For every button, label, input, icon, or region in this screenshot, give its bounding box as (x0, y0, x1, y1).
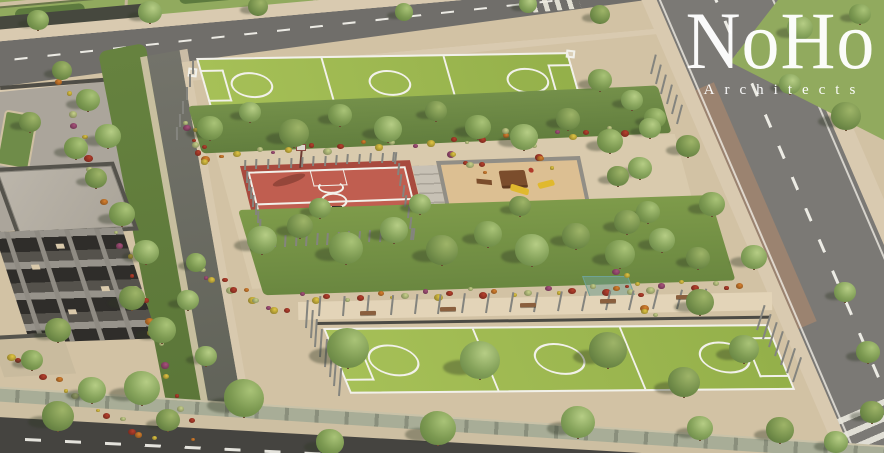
tree (649, 228, 675, 253)
tree-shadow (850, 412, 870, 421)
tree (686, 289, 714, 316)
tree-trunk (631, 107, 633, 111)
tree (316, 429, 344, 453)
tree (834, 282, 856, 303)
logo: NoHo Architects (678, 2, 883, 99)
tree-canopy (644, 108, 666, 129)
tree-shadow (304, 442, 328, 453)
tree-canopy (287, 214, 313, 239)
tree (561, 406, 595, 438)
tree-shadow (730, 257, 752, 267)
tree-trunk (91, 399, 93, 404)
tree-canopy (380, 217, 408, 244)
tree-trunk (699, 311, 701, 316)
tree-canopy (474, 221, 502, 248)
tree-shadow (666, 146, 686, 155)
tree-shadow (362, 129, 386, 140)
tree (78, 377, 106, 404)
tree-trunk (299, 234, 301, 239)
tree-canopy (699, 192, 725, 217)
tree-canopy (420, 411, 456, 445)
tree (374, 116, 402, 143)
tree-shadow (825, 292, 844, 300)
tree (239, 102, 261, 123)
tree-shadow (12, 360, 31, 368)
tree-trunk (743, 359, 745, 364)
tree (831, 102, 861, 131)
tree-shadow (76, 178, 95, 186)
tree (639, 118, 661, 139)
tree-canopy (64, 137, 88, 160)
tree-trunk (187, 307, 189, 311)
tree-canopy (628, 157, 652, 180)
tree-canopy (605, 240, 635, 269)
tree-canopy (425, 101, 447, 122)
tree-canopy (195, 346, 217, 367)
tree (856, 341, 880, 364)
tree-trunk (87, 108, 89, 112)
tree-shadow (818, 116, 844, 127)
tree (644, 108, 666, 129)
tree-canopy (76, 89, 100, 112)
tree (686, 247, 710, 270)
tree-trunk (626, 230, 628, 235)
tree (76, 89, 100, 112)
tree-canopy (668, 367, 700, 397)
tree (425, 101, 447, 122)
tree-shadow (178, 262, 195, 270)
tree (85, 168, 107, 189)
tree-shadow (186, 128, 208, 138)
tree (329, 232, 363, 264)
tree-trunk (347, 362, 349, 369)
tree (52, 61, 72, 80)
tree-canopy (395, 3, 413, 20)
tree-canopy (561, 406, 595, 438)
tree-trunk (293, 143, 295, 148)
tree-shadow (454, 127, 476, 137)
tree-canopy (197, 116, 223, 141)
tree-canopy (45, 318, 71, 343)
tree-canopy (614, 210, 640, 235)
tree (605, 240, 635, 269)
tree-canopy (247, 226, 277, 255)
tree-trunk (844, 299, 846, 303)
tree-canopy (590, 5, 610, 24)
tree-shadow (846, 352, 866, 361)
tree-trunk (639, 176, 641, 180)
tree-canopy (52, 61, 72, 80)
tree-shadow (578, 80, 598, 89)
tree-shadow (109, 388, 140, 402)
tree-canopy (19, 112, 41, 133)
tree-canopy (686, 247, 710, 270)
tree-trunk (131, 306, 133, 311)
tree (224, 379, 264, 417)
tree-canopy (426, 235, 458, 265)
tree-shadow (122, 252, 144, 262)
tree-shadow (387, 12, 402, 19)
tree (156, 409, 180, 432)
tree-trunk (577, 433, 579, 439)
tree-shadow (443, 360, 477, 375)
tree-shadow (230, 112, 249, 120)
tree-shadow (146, 420, 166, 429)
tree (42, 401, 74, 431)
tree (279, 119, 309, 148)
tree-trunk (523, 146, 525, 151)
tree-shadow (573, 350, 605, 364)
tree (186, 253, 206, 272)
tree-canopy (148, 317, 176, 344)
tree-canopy (224, 379, 264, 417)
tree-shadow (412, 250, 439, 262)
tree-trunk (477, 135, 479, 140)
tree-trunk (683, 392, 685, 398)
tree-trunk (845, 126, 847, 131)
tree-trunk (711, 212, 713, 217)
tree-shadow (34, 330, 56, 340)
tree-trunk (167, 428, 169, 432)
tree-trunk (57, 426, 59, 432)
tree-trunk (121, 222, 123, 227)
tree-shadow (108, 298, 130, 308)
tree-trunk (479, 373, 481, 380)
tree-canopy (621, 90, 643, 111)
tree-trunk (647, 220, 649, 224)
tree-canopy (860, 401, 884, 424)
tree-canopy (186, 253, 206, 272)
tree-shadow (54, 148, 74, 157)
tree (474, 221, 502, 248)
tree-canopy (248, 0, 268, 16)
tree-canopy (465, 115, 491, 140)
tree-trunk (779, 439, 781, 444)
tree-canopy (766, 417, 794, 444)
tree-trunk (29, 129, 31, 133)
tree-canopy (589, 332, 627, 368)
tree-shadow (498, 137, 522, 148)
tree-shadow (654, 382, 681, 394)
tree-shadow (462, 234, 486, 245)
tree-trunk (37, 27, 39, 31)
tree-trunk (161, 339, 163, 344)
tree-shadow (582, 14, 599, 22)
tree-canopy (676, 135, 700, 158)
tree-shadow (511, 4, 526, 11)
tree-trunk (419, 211, 421, 215)
tree-canopy (515, 234, 549, 266)
tree-shadow (635, 118, 654, 126)
tree (588, 69, 612, 92)
tree-canopy (687, 416, 713, 441)
tree (327, 328, 369, 368)
tree-shadow (136, 330, 160, 341)
tree (589, 332, 627, 368)
tree-trunk (487, 243, 489, 248)
tree (676, 135, 700, 158)
tree-canopy (597, 129, 623, 154)
tree-shadow (240, 6, 257, 14)
tree-shadow (674, 302, 698, 313)
tree (409, 194, 431, 215)
tree-canopy (741, 245, 767, 270)
tree-canopy (562, 223, 590, 250)
tree (426, 235, 458, 265)
tree-shadow (10, 122, 29, 130)
tree-canopy (328, 104, 352, 127)
tree-canopy (329, 232, 363, 264)
tree-canopy (409, 194, 431, 215)
tree-shadow (234, 240, 260, 251)
tree-shadow (688, 204, 710, 214)
tree-canopy (21, 350, 43, 371)
tree-trunk (261, 250, 263, 255)
tree-canopy (78, 377, 106, 404)
park-masterplan-render: NoHo Architects (0, 0, 884, 453)
tree (109, 202, 135, 227)
tree-shadow (28, 416, 55, 428)
tree (195, 346, 217, 367)
tree (119, 286, 145, 311)
tree (515, 234, 549, 266)
tree-canopy (109, 202, 135, 227)
tree (687, 416, 713, 441)
tree-shadow (501, 250, 530, 263)
tree (465, 115, 491, 140)
tree-shadow (128, 12, 148, 21)
tree (309, 198, 331, 219)
tree (124, 371, 160, 405)
tree-canopy (649, 228, 675, 253)
tree-trunk (867, 360, 869, 364)
tree-shadow (66, 100, 86, 109)
tree-canopy (510, 124, 538, 151)
tree-canopy (639, 118, 661, 139)
tree-canopy (856, 341, 880, 364)
tree-trunk (699, 436, 701, 441)
tree-canopy (42, 401, 74, 431)
tree-trunk (599, 21, 601, 25)
tree-shadow (626, 212, 646, 221)
tree-shadow (186, 356, 205, 364)
tree (148, 317, 176, 344)
tree-shadow (814, 442, 834, 451)
tree (395, 3, 413, 20)
tree-canopy (124, 371, 160, 405)
tree-trunk (243, 411, 245, 418)
tree-canopy (279, 119, 309, 148)
tree-shadow (546, 119, 566, 128)
tree-shadow (592, 254, 618, 265)
tree (197, 116, 223, 141)
tree-trunk (567, 127, 569, 131)
tree-canopy (177, 290, 199, 311)
tree-shadow (84, 136, 106, 146)
tree (45, 318, 71, 343)
tree (597, 129, 623, 154)
tree-canopy (85, 168, 107, 189)
tree (510, 124, 538, 151)
tree-trunk (697, 266, 699, 270)
tree-shadow (612, 100, 631, 108)
tree-shadow (266, 133, 292, 144)
tree-trunk (345, 259, 347, 265)
tree-canopy (834, 282, 856, 303)
tree-trunk (319, 215, 321, 219)
tree-trunk (61, 77, 63, 81)
tree-shadow (500, 206, 519, 214)
tree-trunk (687, 154, 689, 158)
tree-canopy (607, 166, 629, 187)
tree-trunk (107, 144, 109, 149)
tree-shadow (207, 398, 241, 413)
tree (668, 367, 700, 397)
tree-canopy (556, 108, 580, 131)
tree-trunk (617, 183, 619, 187)
tree-shadow (66, 390, 90, 401)
tree-trunk (95, 185, 97, 189)
logo-subtitle: Architects (678, 82, 883, 99)
tree (19, 112, 41, 133)
tree (64, 137, 88, 160)
tree-canopy (831, 102, 861, 131)
tree (95, 124, 121, 149)
tree-shadow (18, 20, 37, 28)
tree-trunk (339, 123, 341, 127)
tree (766, 417, 794, 444)
tree-trunk (609, 149, 611, 154)
tree-trunk (527, 10, 529, 13)
tree-shadow (638, 240, 660, 250)
tree-trunk (393, 239, 395, 244)
tree (21, 350, 43, 371)
tree-shadow (603, 222, 625, 232)
tree-canopy (133, 240, 159, 265)
tree-shadow (547, 422, 576, 435)
tree-trunk (871, 420, 873, 424)
tree-shadow (416, 111, 435, 119)
tree (699, 192, 725, 217)
tree (519, 0, 537, 13)
tree-shadow (405, 428, 436, 442)
tree-canopy (316, 429, 344, 453)
tree-shadow (318, 115, 338, 124)
tree (509, 196, 531, 217)
tree (27, 10, 49, 31)
tree-shadow (586, 141, 608, 151)
tree-canopy (824, 431, 848, 453)
tree-shadow (168, 300, 187, 308)
tree-shadow (315, 248, 344, 261)
tree-canopy (460, 341, 500, 379)
tree-trunk (437, 440, 439, 446)
tree (590, 5, 610, 24)
tree-shadow (550, 236, 574, 247)
tree-canopy (156, 409, 180, 432)
tree (636, 201, 660, 224)
tree (729, 335, 759, 364)
tree (628, 157, 652, 180)
tree (138, 1, 162, 24)
tree-trunk (661, 248, 663, 253)
tree-shadow (598, 176, 617, 184)
tree-canopy (509, 196, 531, 217)
tree-trunk (403, 18, 405, 21)
tree (248, 0, 268, 16)
tree (460, 341, 500, 379)
tree (860, 401, 884, 424)
tree-shadow (716, 349, 742, 360)
tree (133, 240, 159, 265)
tree (562, 223, 590, 250)
tree-trunk (649, 135, 651, 139)
tree-trunk (607, 362, 609, 369)
tree-trunk (75, 156, 77, 160)
tree (614, 210, 640, 235)
tree-canopy (138, 1, 162, 24)
tree (328, 104, 352, 127)
tree-trunk (257, 13, 259, 17)
tree-canopy (309, 198, 331, 219)
tree-trunk (57, 338, 59, 343)
tree-trunk (753, 265, 755, 270)
tree-trunk (441, 260, 443, 266)
tree-shadow (618, 168, 638, 177)
tree (824, 431, 848, 453)
logo-name: NoHo (678, 0, 883, 83)
tree-trunk (31, 367, 33, 371)
tree-trunk (141, 400, 143, 406)
tree-shadow (676, 258, 696, 267)
tree-trunk (249, 119, 251, 123)
tree-trunk (599, 88, 601, 92)
tree (741, 245, 767, 270)
tree-trunk (575, 245, 577, 250)
tree-trunk (519, 213, 521, 217)
tree-shadow (276, 226, 298, 236)
tree-trunk (531, 261, 533, 267)
tree-canopy (686, 289, 714, 316)
tree-trunk (209, 136, 211, 141)
tree-shadow (44, 70, 61, 78)
tree-canopy (239, 102, 261, 123)
tree-shadow (309, 348, 345, 364)
tree (247, 226, 277, 255)
tree (607, 166, 629, 187)
tree-shadow (368, 230, 392, 241)
tree-trunk (149, 20, 151, 24)
tree-trunk (195, 269, 197, 273)
tree-canopy (636, 201, 660, 224)
tree-canopy (27, 10, 49, 31)
tree (420, 411, 456, 445)
tree-canopy (374, 116, 402, 143)
tree-shadow (676, 428, 698, 438)
tree-trunk (619, 264, 621, 269)
tree-canopy (327, 328, 369, 368)
tree-shadow (98, 214, 120, 224)
tree-canopy (95, 124, 121, 149)
tree-trunk (145, 260, 147, 265)
tree (380, 217, 408, 244)
tree-trunk (205, 363, 207, 367)
tree-shadow (630, 128, 649, 136)
tree-canopy (519, 0, 537, 13)
tree (556, 108, 580, 131)
tree-canopy (729, 335, 759, 364)
tree (287, 214, 313, 239)
